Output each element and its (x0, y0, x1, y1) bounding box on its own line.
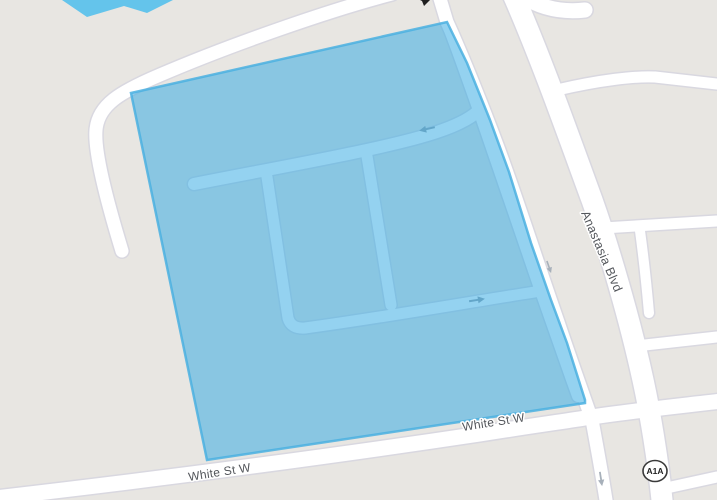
road-cross-east-1 (603, 221, 717, 228)
map-canvas[interactable]: Anastasia Blvd White St W White St W A1A (0, 0, 717, 500)
map-viewport[interactable]: Anastasia Blvd White St W White St W A1A (0, 0, 717, 500)
route-shield-a1a: A1A (643, 461, 667, 482)
route-shield-label: A1A (646, 466, 663, 476)
